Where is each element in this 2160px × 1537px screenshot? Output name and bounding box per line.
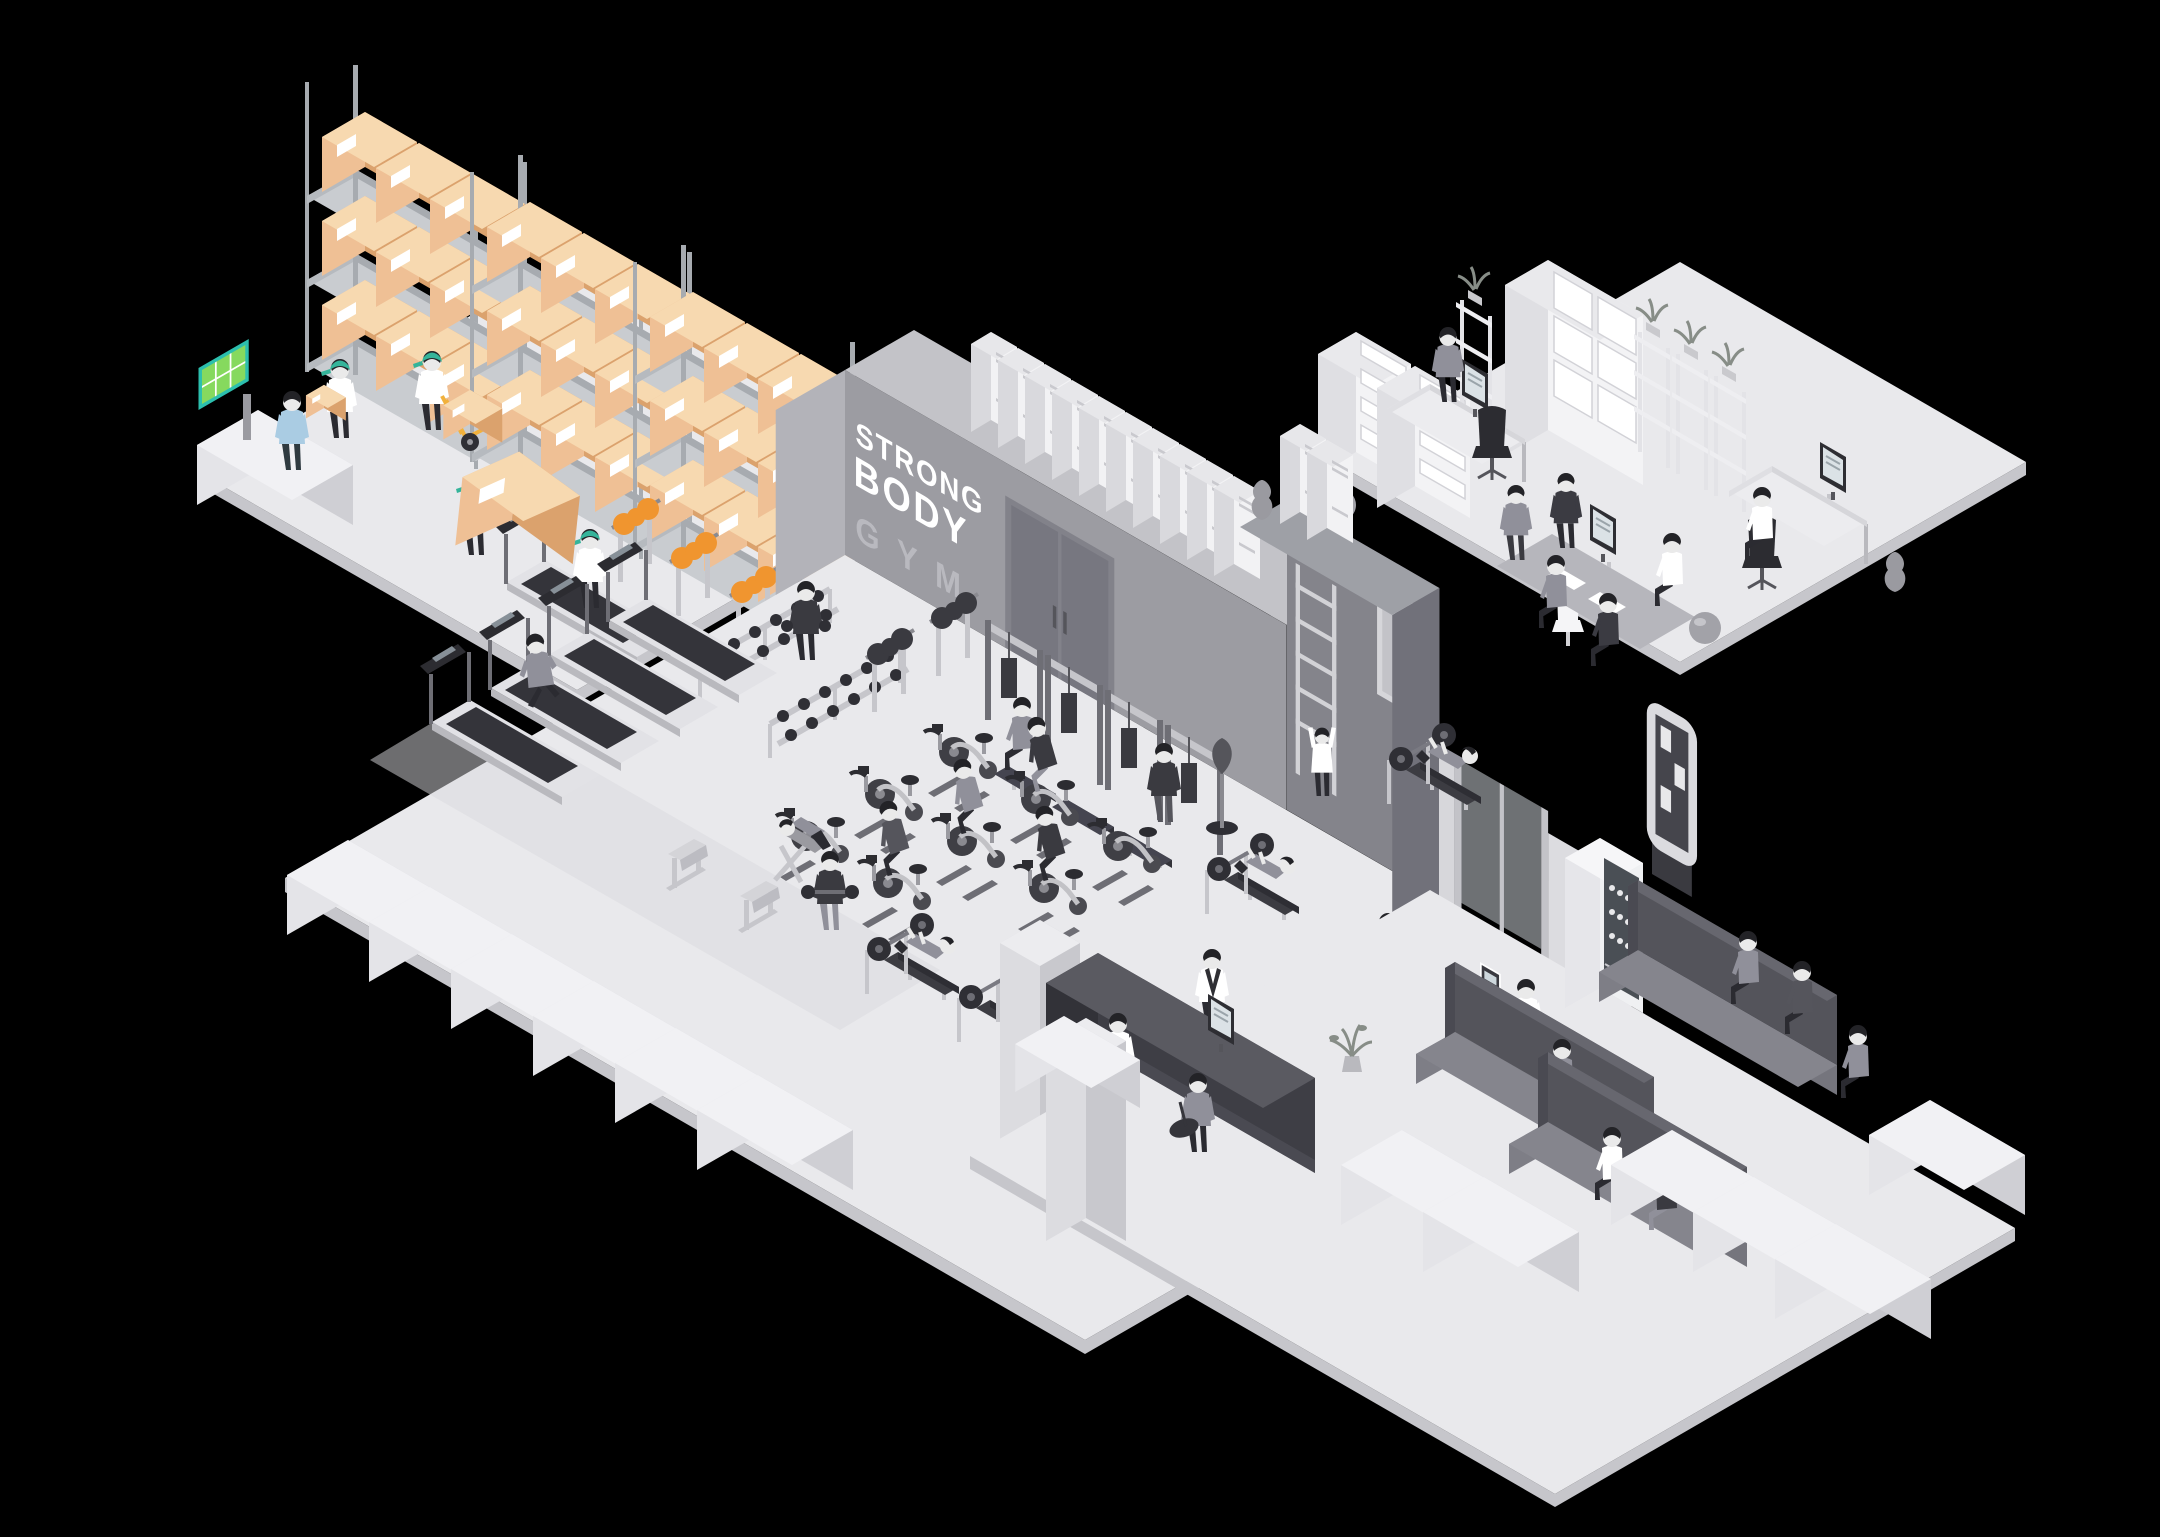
- glass-door: [1462, 761, 1500, 925]
- display-stand: [1647, 697, 1697, 900]
- illustration-stage: STRONG BODY GYM: [0, 0, 2160, 1537]
- isometric-gym-illustration: STRONG BODY GYM: [0, 0, 2160, 1537]
- wall-bars: [1296, 563, 1300, 776]
